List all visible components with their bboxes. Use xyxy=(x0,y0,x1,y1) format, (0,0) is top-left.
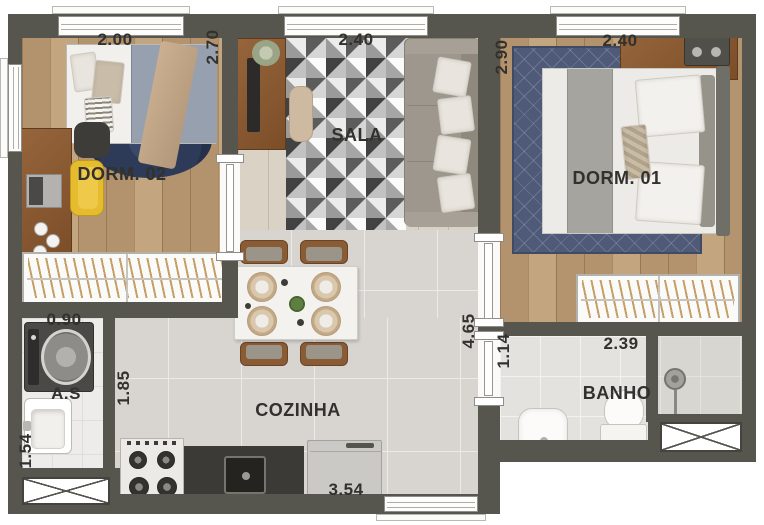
dim-dorm02-depth: 2.70 xyxy=(203,20,223,74)
wardrobe-dorm01 xyxy=(576,274,740,324)
window-sill xyxy=(0,58,8,158)
window-sill xyxy=(278,6,434,14)
place-setting xyxy=(247,306,277,336)
door-leaf-dorm02 xyxy=(226,164,234,252)
cup-dark xyxy=(245,303,251,309)
table-plant xyxy=(289,296,305,312)
room-label-dorm01: DORM. 01 xyxy=(557,167,677,189)
dining-chair xyxy=(300,240,348,264)
window-dorm02-side xyxy=(8,64,22,152)
washer-drum xyxy=(41,329,91,385)
sofa-armrest xyxy=(405,39,481,54)
door-leaf-banho xyxy=(484,341,493,396)
dining-chair xyxy=(240,240,288,264)
chair-seat xyxy=(306,345,342,359)
tank-basin xyxy=(31,409,65,449)
radio-knob xyxy=(692,47,702,57)
dim-sala-width: 2.40 xyxy=(329,30,383,50)
window-sill xyxy=(52,6,190,14)
cup-dark xyxy=(281,279,288,286)
washer-dial xyxy=(31,335,36,340)
laptop-screen xyxy=(29,177,43,205)
dining-chair xyxy=(240,342,288,366)
window-sill xyxy=(376,514,486,521)
dim-dorm01-width: 2.40 xyxy=(593,31,647,51)
room-label-cozinha: COZINHA xyxy=(238,399,358,421)
door-frame xyxy=(474,233,504,242)
desk-chair-black xyxy=(74,122,110,158)
drain xyxy=(242,472,250,480)
hanger-rod xyxy=(27,278,223,280)
plant-sala xyxy=(252,40,280,66)
place-setting xyxy=(311,306,341,336)
burner xyxy=(129,451,147,469)
chair-seat xyxy=(246,345,282,359)
dim-dorm01-depth: 2.90 xyxy=(492,30,512,84)
sofa-pillow xyxy=(437,95,475,135)
sofa-pillow xyxy=(437,173,476,213)
shower-head xyxy=(664,368,686,390)
floor-plan: 2.00 2.70 2.40 2.90 2.40 0.90 1.54 1.85 … xyxy=(0,0,764,525)
place-setting xyxy=(311,272,341,302)
chair-seat xyxy=(246,247,282,261)
dim-cozinha-depth: 4.65 xyxy=(459,304,479,358)
stove-knobs xyxy=(127,441,179,445)
washing-machine xyxy=(24,322,94,392)
sofa xyxy=(404,38,480,226)
dining-table xyxy=(234,266,358,340)
room-label-as: A.S xyxy=(36,383,96,405)
sofa-armrest xyxy=(405,212,481,227)
burner xyxy=(157,451,175,469)
radio-knob xyxy=(711,47,721,57)
dim-as-side: 1.54 xyxy=(16,424,36,478)
sofa-pillow xyxy=(432,135,471,176)
door-leaf-dorm01 xyxy=(484,243,493,319)
cup xyxy=(34,222,48,236)
radio xyxy=(684,36,730,66)
tv xyxy=(247,58,260,132)
door-frame xyxy=(216,252,244,261)
chair-seat xyxy=(306,247,342,261)
cup-dark xyxy=(297,319,304,326)
bed-runner xyxy=(567,69,613,233)
duct-shaft-as xyxy=(22,477,110,505)
duct-shaft-banho xyxy=(660,422,742,452)
fridge-handle xyxy=(346,443,374,448)
dim-banho-depth: 1.14 xyxy=(494,324,514,378)
kitchen-sink xyxy=(224,456,266,494)
double-bed-dorm01 xyxy=(542,68,722,234)
wall-dorm02-sala xyxy=(222,38,238,160)
headboard xyxy=(716,66,730,236)
dim-dorm02-width: 2.00 xyxy=(88,30,142,50)
dim-banho-width: 2.39 xyxy=(594,334,648,354)
door-frame xyxy=(474,397,504,406)
dining-chair xyxy=(300,342,348,366)
washer-panel xyxy=(28,329,39,385)
wardrobe-divider xyxy=(126,254,128,302)
place-setting xyxy=(247,272,277,302)
wardrobe-divider xyxy=(658,276,660,322)
wall-east xyxy=(742,14,756,462)
fridge-seam xyxy=(310,451,381,452)
dim-as-depth: 1.85 xyxy=(114,361,134,415)
window-cozinha xyxy=(384,496,478,512)
window-sill xyxy=(550,6,686,14)
wardrobe-dorm02 xyxy=(22,252,228,304)
dim-as-width: 0.90 xyxy=(37,310,91,330)
wall-kitchen-east xyxy=(478,400,500,496)
sofa-pillow xyxy=(432,56,472,97)
cup xyxy=(46,234,60,248)
dim-cozinha-width: 3.54 xyxy=(319,480,373,500)
room-label-dorm02: DORM. 02 xyxy=(62,163,182,185)
door-frame xyxy=(216,154,244,163)
room-label-sala: SALA xyxy=(307,124,407,146)
laptop xyxy=(26,174,62,208)
room-label-banho: BANHO xyxy=(567,382,667,404)
